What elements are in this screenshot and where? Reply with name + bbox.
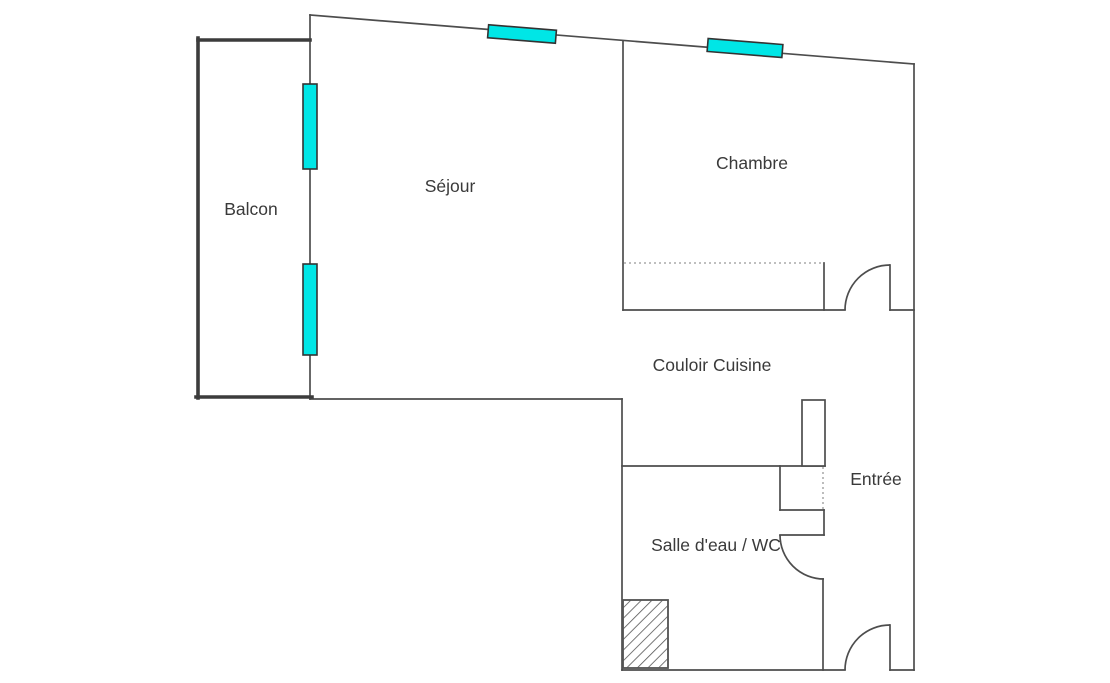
room-label-entree: Entrée — [850, 469, 902, 489]
room-label-chambre: Chambre — [716, 153, 788, 173]
floor-plan: BalconSéjourChambreCouloir CuisineEntrée… — [0, 0, 1110, 683]
room-label-salle-eau-wc: Salle d'eau / WC — [651, 535, 781, 555]
balcony-window-upper-window-icon — [303, 84, 317, 169]
technical-shaft-hatched — [623, 600, 668, 668]
duct-pillar — [802, 400, 825, 466]
room-label-sejour: Séjour — [425, 176, 476, 196]
floor-plan-svg: BalconSéjourChambreCouloir CuisineEntrée… — [0, 0, 1110, 683]
plan-background — [0, 0, 1110, 683]
balcony-window-lower-window-icon — [303, 264, 317, 355]
room-label-couloir-cuisine: Couloir Cuisine — [653, 355, 772, 375]
room-label-balcon: Balcon — [224, 199, 278, 219]
